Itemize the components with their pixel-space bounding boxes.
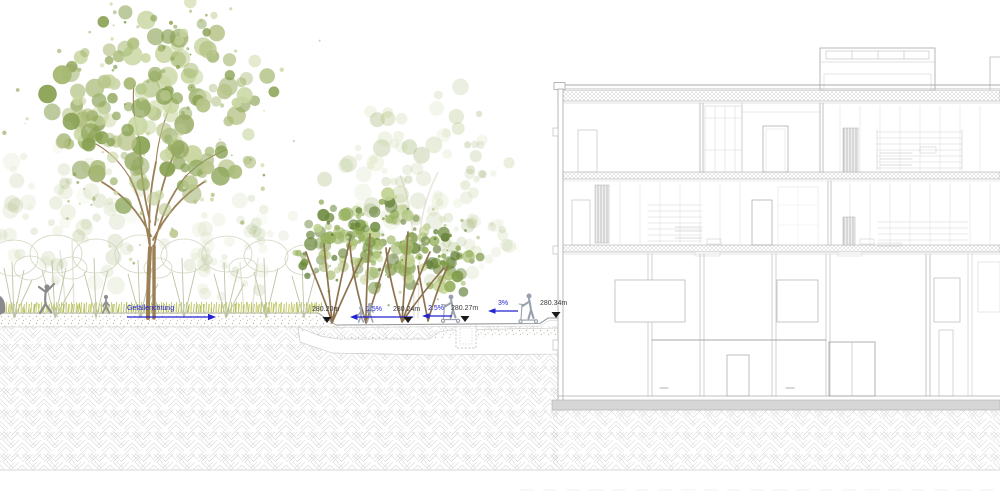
figure-scooter-rider-2	[519, 294, 538, 323]
large-tree	[2, 0, 320, 318]
rooftop-structure	[820, 48, 935, 90]
wall-panel	[615, 280, 685, 322]
level-marker-triangle	[404, 317, 413, 323]
wall-panel	[934, 278, 960, 322]
figure-partial-left-edge	[0, 296, 5, 315]
slope-arrow-3	[488, 308, 518, 314]
section-drawing	[0, 0, 1000, 500]
figure-scooter-rider-1	[441, 295, 459, 323]
wall-panel	[777, 280, 818, 322]
building-section	[552, 48, 1000, 410]
floor-slab-middle	[563, 245, 1000, 252]
level-marker-triangle	[461, 316, 470, 322]
floor-slab-upper	[563, 172, 1000, 179]
section-drawing-canvas: Gefällerichtung 280.20m 1.5% 280.24m 2.5…	[0, 0, 1000, 500]
